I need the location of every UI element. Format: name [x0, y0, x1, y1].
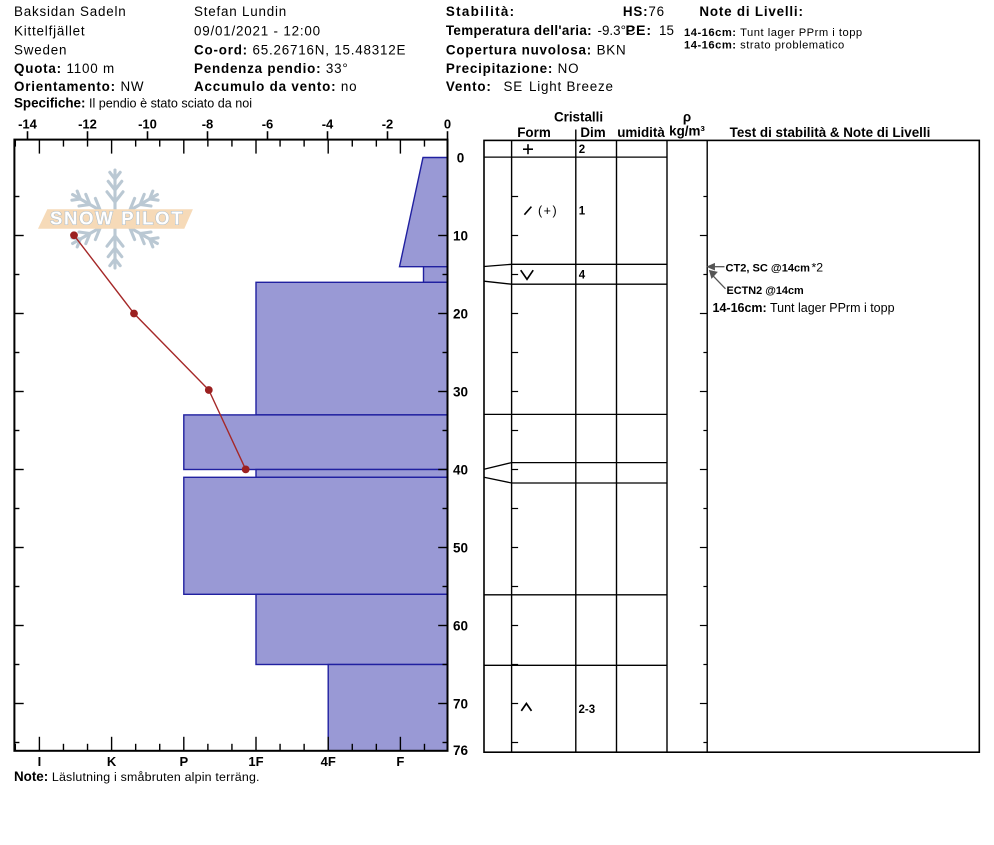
svg-text:2-3: 2-3: [579, 704, 596, 716]
svg-text:Note: Läslutning i småbruten: Note: Läslutning i småbruten alpin terrä…: [14, 769, 260, 784]
svg-text:P: P: [179, 754, 188, 769]
svg-text:Cristalli: Cristalli: [554, 109, 603, 124]
svg-text:Quota: 1100 m: Quota: 1100 m: [14, 61, 115, 76]
svg-text:*2: *2: [812, 261, 824, 275]
svg-text:Note di Livelli:: Note di Livelli:: [699, 4, 803, 19]
svg-text:Form: Form: [517, 125, 551, 140]
svg-text:-14: -14: [18, 117, 38, 132]
svg-text:60: 60: [453, 618, 468, 633]
svg-text:2: 2: [579, 144, 585, 156]
svg-text:Co-ord: 65.26716N, 15.48312E: Co-ord: 65.26716N, 15.48312E: [194, 42, 406, 57]
svg-text:ECTN2 @14cm: ECTN2 @14cm: [727, 285, 805, 297]
svg-text:09/01/2021 - 12:00: 09/01/2021 - 12:00: [194, 23, 321, 38]
svg-text:Kittelfjället: Kittelfjället: [14, 23, 85, 38]
svg-text:Dim: Dim: [580, 125, 605, 140]
svg-text:kg/m³: kg/m³: [669, 124, 705, 139]
svg-text:ρ: ρ: [683, 109, 691, 124]
svg-text:I: I: [38, 754, 42, 769]
svg-text:Test di stabilità & Note di Li: Test di stabilità & Note di Livelli: [730, 125, 931, 140]
svg-text:4: 4: [579, 269, 586, 281]
svg-text:-12: -12: [78, 117, 97, 132]
svg-text:-4: -4: [322, 117, 334, 132]
svg-text:SNOW PILOT: SNOW PILOT: [50, 207, 184, 228]
svg-text:Temperatura dell'aria:: Temperatura dell'aria:: [446, 23, 592, 38]
svg-text:-8: -8: [202, 117, 214, 132]
svg-text:76: 76: [453, 743, 469, 758]
svg-text:40: 40: [453, 462, 468, 477]
svg-text:1: 1: [579, 205, 586, 217]
svg-text:0: 0: [444, 117, 451, 132]
svg-text:-6: -6: [262, 117, 274, 132]
svg-text:0: 0: [457, 150, 465, 165]
svg-text:Orientamento: NW: Orientamento: NW: [14, 79, 144, 94]
svg-text:15: 15: [659, 23, 674, 38]
svg-text:14-16cm: Tunt lager PPrm i top: 14-16cm: Tunt lager PPrm i topp: [713, 301, 895, 315]
svg-text:10: 10: [453, 228, 468, 243]
svg-text:-2: -2: [382, 117, 394, 132]
svg-text:Copertura nuvolosa: BKN: Copertura nuvolosa: BKN: [446, 42, 627, 57]
svg-text:20: 20: [453, 306, 468, 321]
svg-text:Sweden: Sweden: [14, 42, 67, 57]
svg-text:4F: 4F: [321, 754, 336, 769]
svg-text:Precipitazione: NO: Precipitazione: NO: [446, 61, 579, 76]
svg-text:Specifiche: Il pendio è stato: Specifiche: Il pendio è stato sciato da …: [14, 96, 252, 111]
svg-text:umidità: umidità: [617, 125, 665, 140]
svg-text:Stabilità:: Stabilità:: [446, 4, 516, 19]
svg-text:F: F: [396, 754, 404, 769]
svg-text:Baksidan Sadeln: Baksidan Sadeln: [14, 4, 127, 19]
svg-text:Stefan Lundin: Stefan Lundin: [194, 4, 287, 19]
svg-text:Accumulo da vento: no: Accumulo da vento: no: [194, 79, 357, 94]
svg-text:Pendenza pendio: 33°: Pendenza pendio: 33°: [194, 61, 349, 76]
svg-text:50: 50: [453, 540, 468, 555]
svg-text:HS:76: HS:76: [623, 4, 665, 19]
svg-text:30: 30: [453, 384, 468, 399]
svg-text:Vento:SELight Breeze: Vento:SELight Breeze: [446, 79, 614, 94]
svg-text:1F: 1F: [248, 754, 263, 769]
svg-text:14-16cm: Tunt lager PPrm i top: 14-16cm: Tunt lager PPrm i topp: [684, 27, 863, 39]
svg-text:14-16cm: strato problematico: 14-16cm: strato problematico: [684, 39, 845, 51]
svg-text:K: K: [107, 754, 117, 769]
svg-text:(+): (+): [538, 204, 558, 218]
svg-text:-10: -10: [138, 117, 157, 132]
svg-text:CT2, SC @14cm: CT2, SC @14cm: [726, 263, 811, 275]
svg-text:70: 70: [453, 696, 468, 711]
svg-text:PE:: PE:: [626, 23, 653, 39]
